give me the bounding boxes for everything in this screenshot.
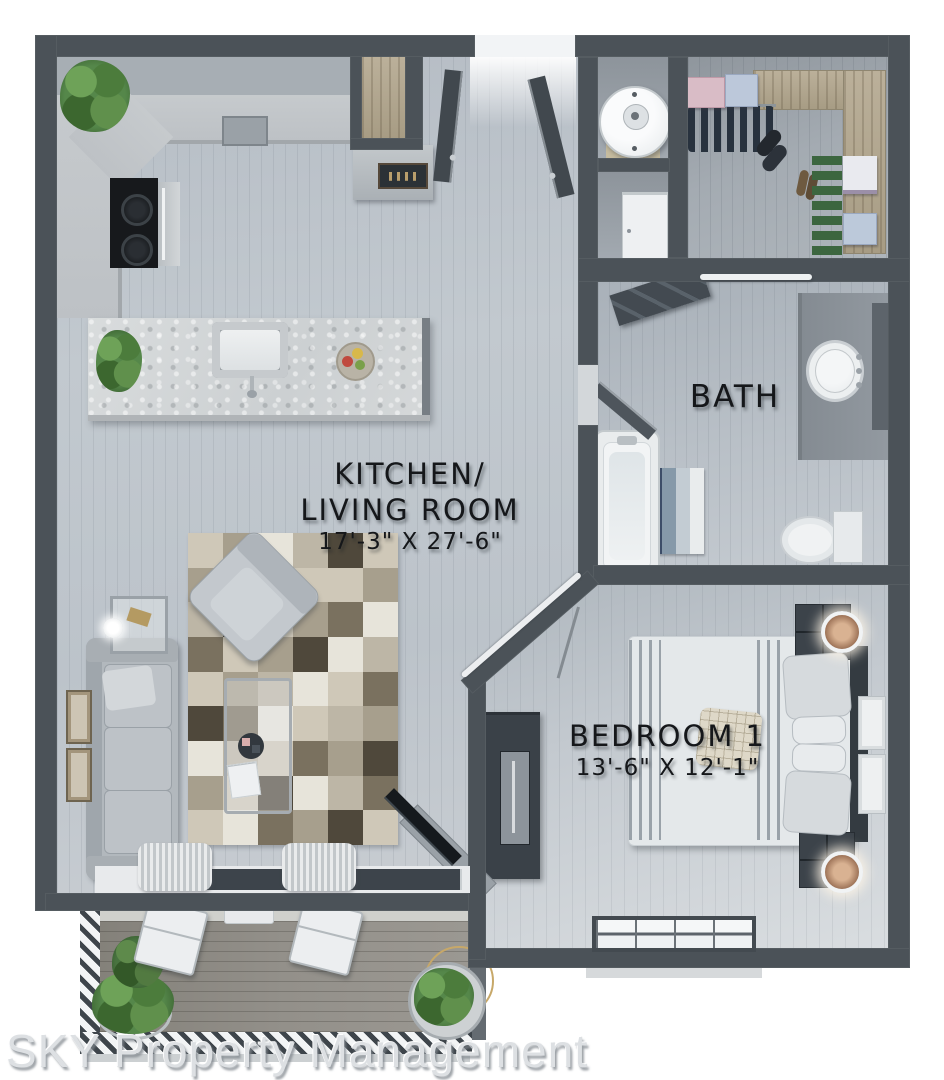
rug-tile xyxy=(363,672,398,707)
fruit-red xyxy=(342,356,353,367)
top-wall xyxy=(35,35,475,57)
bed-pillow xyxy=(782,652,852,720)
island-faucet xyxy=(250,376,254,394)
rug-tile xyxy=(188,672,223,707)
island-sink xyxy=(212,322,288,378)
room-name: KITCHEN/ xyxy=(245,456,575,492)
wall-art xyxy=(66,690,92,744)
table-lamp xyxy=(821,851,863,893)
storage-box-pink xyxy=(687,77,725,108)
heater-bolt xyxy=(632,92,637,97)
hall-wall-lower xyxy=(578,425,598,582)
rug-tile xyxy=(363,810,398,845)
rug-tile xyxy=(328,568,363,603)
sink-faucet xyxy=(856,354,862,360)
living-bottom-wall xyxy=(45,893,486,911)
heater-bolt xyxy=(632,146,637,151)
bedroom-window-sill xyxy=(586,968,762,978)
hall-wall-upper xyxy=(578,57,598,365)
left-wall xyxy=(35,35,57,911)
sofa-pillow xyxy=(101,665,156,712)
laundry-appliance xyxy=(622,192,668,262)
burner-icon xyxy=(121,194,153,226)
rug-tile xyxy=(363,706,398,741)
rug-tile xyxy=(363,602,398,637)
wall-art xyxy=(858,754,886,814)
pantry-wall-right xyxy=(405,45,423,150)
rug-tile xyxy=(188,776,223,811)
sofa-cushion xyxy=(104,727,172,791)
kitchen-sink-small xyxy=(222,116,268,146)
chair-seam xyxy=(299,925,356,941)
pantry-wall-left xyxy=(350,45,362,150)
bedroom-label: BEDROOM 1 13'-6" X 12'-1" xyxy=(505,718,830,782)
entry-light-glow xyxy=(470,57,576,127)
oven-handle xyxy=(162,188,165,260)
bedroom-living-wall xyxy=(468,672,486,960)
room-name: BEDROOM 1 xyxy=(505,718,830,754)
kitchen-living-label: KITCHEN/ LIVING ROOM 17'-3" X 27'-6" xyxy=(245,456,575,556)
rug-tile xyxy=(188,741,223,776)
rug-tile xyxy=(363,741,398,776)
room-dimensions: 13'-6" X 12'-1" xyxy=(505,754,830,782)
bedroom-window xyxy=(592,916,756,952)
utility-closet-wall xyxy=(668,57,688,258)
wall-art xyxy=(858,696,886,750)
bathtub xyxy=(594,430,660,582)
corner-plant xyxy=(60,60,130,132)
water-heater xyxy=(599,86,671,158)
heater-valve xyxy=(631,112,639,120)
curtain xyxy=(282,843,356,891)
burner-icon xyxy=(121,234,153,266)
bath-bedroom-wall xyxy=(593,565,910,585)
rug-tile xyxy=(293,741,328,776)
oven-door xyxy=(158,182,180,266)
bath-door-threshold xyxy=(578,365,598,425)
storage-box-lightblue xyxy=(843,213,877,245)
rug-tile xyxy=(293,637,328,672)
rug-tile xyxy=(363,568,398,603)
chair-seam xyxy=(144,925,201,941)
sink-basin xyxy=(220,330,280,370)
fruit-green xyxy=(355,360,365,370)
room-name: BATH xyxy=(660,379,810,415)
decor-tray xyxy=(238,733,264,759)
hanging-organizer-green xyxy=(812,156,842,256)
window-panes xyxy=(596,920,752,948)
tray-item-dark xyxy=(252,745,260,753)
watermark: SKY Property Management xyxy=(6,1024,588,1078)
planter-foliage xyxy=(414,968,474,1026)
pantry-wall-bottom xyxy=(350,138,423,150)
storage-box-blue xyxy=(725,74,758,107)
fruit-bowl xyxy=(336,342,375,381)
appliance-handle xyxy=(627,229,631,233)
towel-bar xyxy=(700,274,812,280)
island-side-edge xyxy=(422,318,430,415)
rug-tile xyxy=(188,810,223,845)
rug-tile xyxy=(293,706,328,741)
wall-art xyxy=(66,748,92,802)
toilet-bowl xyxy=(780,516,840,564)
rug-tile xyxy=(328,741,363,776)
top-wall xyxy=(575,35,910,57)
rug-tile xyxy=(328,706,363,741)
pantry-floor xyxy=(362,57,405,138)
table-lamp xyxy=(821,611,863,653)
bathroom-sink xyxy=(806,340,864,402)
storage-box-white xyxy=(843,156,877,194)
entry-threshold xyxy=(475,35,575,57)
vanity-mirror xyxy=(872,303,888,430)
fruit-yellow xyxy=(352,348,363,359)
rug-tile xyxy=(188,637,223,672)
wall-oven-display xyxy=(378,163,428,189)
coffee-table xyxy=(224,678,292,814)
utility-divider-wall xyxy=(598,158,670,172)
rug-tile xyxy=(328,637,363,672)
tray-item-pink xyxy=(242,738,250,746)
toilet-tank xyxy=(833,511,863,563)
rug-tile xyxy=(223,810,258,845)
books-stack xyxy=(227,761,261,799)
curtain xyxy=(138,843,212,891)
bathtub-faucet-icon xyxy=(617,436,637,445)
rug-tile xyxy=(293,776,328,811)
rug-tile xyxy=(328,672,363,707)
right-wall xyxy=(888,35,910,968)
door-knob-icon xyxy=(549,172,556,179)
rug-tile xyxy=(328,602,363,637)
rug-tile xyxy=(293,672,328,707)
faucet-head xyxy=(247,390,257,398)
stove-cooktop xyxy=(110,178,158,268)
rug-tile xyxy=(363,637,398,672)
rug-tile xyxy=(328,776,363,811)
bathtub-basin xyxy=(609,452,645,560)
rug-tile xyxy=(258,810,293,845)
rug-tile xyxy=(293,810,328,845)
room-dimensions: 17'-3" X 27'-6" xyxy=(245,528,575,556)
bath-label: BATH xyxy=(660,379,810,415)
rug-tile xyxy=(328,810,363,845)
island-plant xyxy=(96,330,142,392)
table-lamp-ball xyxy=(103,618,123,638)
room-name: LIVING ROOM xyxy=(245,492,575,528)
floor-plan: KITCHEN/ LIVING ROOM 17'-3" X 27'-6" BAT… xyxy=(0,0,944,1080)
rug-tile xyxy=(188,706,223,741)
